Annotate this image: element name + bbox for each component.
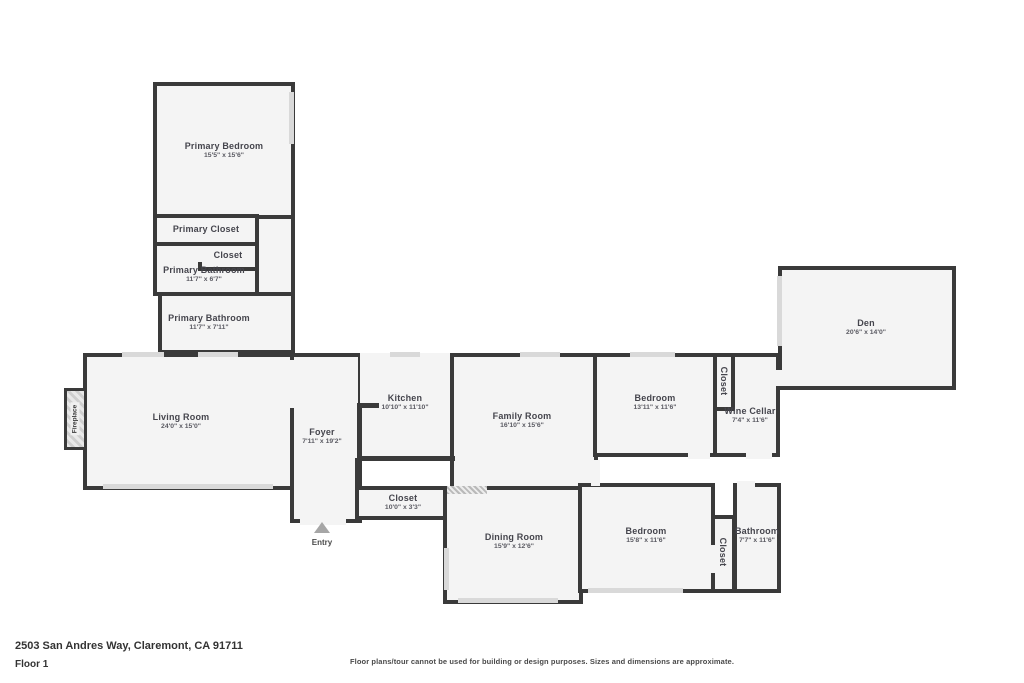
primary-closet-door bbox=[196, 246, 203, 262]
kitchen-top-window bbox=[390, 352, 420, 357]
dining-room-name: Dining Room bbox=[485, 532, 543, 542]
wine-cellar-name: Wine Cellar bbox=[724, 406, 775, 416]
living-room-label: Living Room24'0" x 15'0" bbox=[153, 412, 210, 430]
wine-cellar-label: Wine Cellar7'4" x 11'6" bbox=[724, 406, 775, 424]
closet-upper-label: Closet bbox=[719, 367, 729, 396]
dining-left-window bbox=[444, 548, 449, 590]
primary-closet-name: Primary Closet bbox=[173, 224, 239, 234]
bathroom-door bbox=[737, 481, 755, 489]
foyer-closet-link bbox=[355, 458, 360, 490]
family-room-name: Family Room bbox=[493, 411, 552, 421]
closet-hall-name: Closet bbox=[385, 493, 421, 503]
dining-slider-door bbox=[447, 486, 487, 494]
closet-upper-name: Closet bbox=[719, 367, 729, 396]
bedroom-lower-dimensions: 15'8" x 11'6" bbox=[626, 537, 667, 544]
den-dimensions: 20'6" x 14'0" bbox=[846, 329, 886, 336]
den-label: Den20'6" x 14'0" bbox=[846, 318, 886, 336]
foyer-label: Foyer7'11" x 19'2" bbox=[302, 427, 342, 445]
family-hall-opening bbox=[591, 460, 600, 486]
primary-bedroom-label: Primary Bedroom15'5" x 15'6" bbox=[185, 141, 264, 159]
dining-room-label: Dining Room15'9" x 12'6" bbox=[485, 532, 543, 550]
den-left-window bbox=[777, 276, 782, 346]
floor-label: Floor 1 bbox=[15, 659, 48, 670]
family-room-label: Family Room16'10" x 15'6" bbox=[493, 411, 552, 429]
closet-lower-door bbox=[709, 545, 717, 573]
bathroom-label: Bathroom7'7" x 11'6" bbox=[735, 526, 779, 544]
property-address: 2503 San Andres Way, Claremont, CA 91711 bbox=[15, 640, 243, 652]
living-foyer-opening bbox=[288, 360, 297, 408]
closet-hall-label: Closet10'0" x 3'3" bbox=[385, 493, 421, 511]
primary-bathroom-upper-label: Primary Bathroom11'7" x 6'7" bbox=[163, 265, 245, 283]
living-room-dimensions: 24'0" x 15'0" bbox=[153, 423, 210, 430]
primary-bedroom-right-window bbox=[289, 92, 294, 144]
bedroom-lower-bottom-window bbox=[588, 588, 683, 593]
bedroom-upper-door bbox=[688, 452, 710, 459]
bedroom-lower-label: Bedroom15'8" x 11'6" bbox=[626, 526, 667, 544]
kitchen-counter-bottom bbox=[360, 456, 455, 461]
disclaimer-text: Floor plans/tour cannot be used for buil… bbox=[350, 657, 734, 666]
kitchen-label: Kitchen10'10" x 11'10" bbox=[381, 393, 428, 411]
primary-closet-label: Primary Closet bbox=[173, 224, 239, 234]
primary-bathroom-lower-dimensions: 11'7" x 7'11" bbox=[168, 324, 250, 331]
closet-lower-label: Closet bbox=[718, 538, 728, 567]
bedroom-upper-top-window bbox=[630, 352, 675, 357]
wine-cellar-dimensions: 7'4" x 11'6" bbox=[724, 417, 775, 424]
kitchen-counter-stub bbox=[357, 403, 379, 408]
closet-primary-small-name: Closet bbox=[214, 250, 243, 260]
living-top-window-a bbox=[122, 352, 164, 357]
kitchen-counter-vertical bbox=[357, 403, 362, 461]
kitchen-dimensions: 10'10" x 11'10" bbox=[381, 404, 428, 411]
foyer-dimensions: 7'11" x 19'2" bbox=[302, 438, 342, 445]
dining-room-dimensions: 15'9" x 12'6" bbox=[485, 543, 543, 550]
living-top-window-b bbox=[198, 352, 238, 357]
bedroom-upper-dimensions: 13'11" x 11'6" bbox=[634, 404, 677, 411]
den-door bbox=[775, 370, 784, 386]
foyer-name: Foyer bbox=[302, 427, 342, 437]
primary-bathroom-lower-name: Primary Bathroom bbox=[168, 313, 250, 323]
primary-bathroom-upper-name: Primary Bathroom bbox=[163, 265, 245, 275]
bedroom-lower-name: Bedroom bbox=[626, 526, 667, 536]
entry-arrow-icon bbox=[314, 522, 330, 533]
fireplace-label: Fireplace bbox=[71, 403, 80, 436]
dining-bottom-window bbox=[458, 598, 558, 603]
wine-cellar-door bbox=[746, 452, 772, 459]
family-top-window bbox=[520, 352, 560, 357]
bedroom-upper-label: Bedroom13'11" x 11'6" bbox=[634, 393, 677, 411]
closet-primary-small-label: Closet bbox=[214, 250, 243, 260]
bathroom-dimensions: 7'7" x 11'6" bbox=[735, 537, 779, 544]
floor-plan: 2503 San Andres Way, Claremont, CA 91711… bbox=[0, 0, 1024, 683]
family-room-dimensions: 16'10" x 15'6" bbox=[493, 422, 552, 429]
primary-bedroom-dimensions: 15'5" x 15'6" bbox=[185, 152, 264, 159]
primary-bedroom-name: Primary Bedroom bbox=[185, 141, 264, 151]
den-name: Den bbox=[846, 318, 886, 328]
living-bottom-window bbox=[103, 484, 273, 489]
bedroom-upper-name: Bedroom bbox=[634, 393, 677, 403]
bathroom-name: Bathroom bbox=[735, 526, 779, 536]
entry-label: Entry bbox=[312, 538, 332, 547]
kitchen-name: Kitchen bbox=[381, 393, 428, 403]
primary-bathroom-lower-label: Primary Bathroom11'7" x 7'11" bbox=[168, 313, 250, 331]
closet-lower-name: Closet bbox=[718, 538, 728, 567]
living-room-name: Living Room bbox=[153, 412, 210, 422]
closet-hall-dimensions: 10'0" x 3'3" bbox=[385, 504, 421, 511]
primary-bathroom-upper-dimensions: 11'7" x 6'7" bbox=[163, 276, 245, 283]
